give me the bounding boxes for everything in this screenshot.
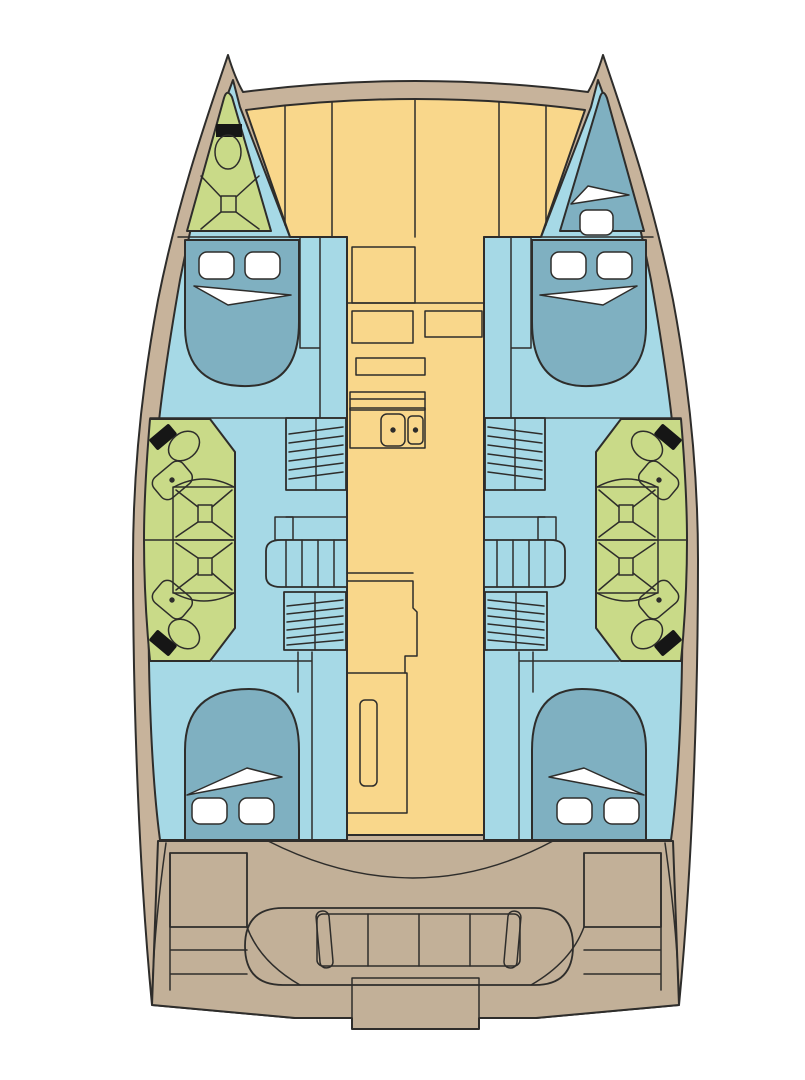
- bed-pillow: [580, 210, 613, 235]
- cockpit-area: [152, 841, 679, 1029]
- catamaran-floor-plan: [0, 0, 805, 1080]
- plan-drawing: [133, 55, 698, 1029]
